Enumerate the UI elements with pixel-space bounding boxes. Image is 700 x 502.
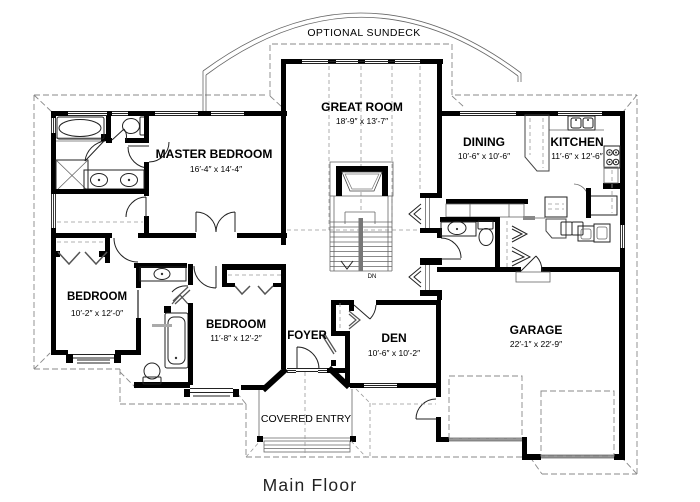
svg-text:FOYER: FOYER — [287, 330, 327, 342]
svg-text:BEDROOM: BEDROOM — [67, 291, 127, 303]
svg-text:22′-1″ x 22′-9″: 22′-1″ x 22′-9″ — [510, 339, 562, 349]
svg-text:COVERED ENTRY: COVERED ENTRY — [261, 413, 351, 425]
svg-text:10′-6″ x 10′-6″: 10′-6″ x 10′-6″ — [458, 151, 510, 161]
svg-text:MASTER BEDROOM: MASTER BEDROOM — [156, 147, 273, 161]
svg-text:DN: DN — [368, 274, 377, 280]
svg-text:GARAGE: GARAGE — [510, 323, 563, 337]
svg-text:DEN: DEN — [381, 331, 406, 345]
svg-text:BEDROOM: BEDROOM — [206, 319, 266, 331]
svg-text:Main Floor: Main Floor — [263, 475, 358, 495]
svg-text:DINING: DINING — [463, 135, 505, 149]
svg-text:KITCHEN: KITCHEN — [550, 135, 603, 149]
svg-text:GREAT ROOM: GREAT ROOM — [321, 100, 403, 114]
svg-text:18′-9″ x 13′-7″: 18′-9″ x 13′-7″ — [336, 116, 388, 126]
svg-text:11′-6″ x 12′-6″: 11′-6″ x 12′-6″ — [551, 151, 603, 161]
svg-text:10′-6″ x 10′-2″: 10′-6″ x 10′-2″ — [368, 348, 420, 358]
svg-text:11′-8″ x 12′-2″: 11′-8″ x 12′-2″ — [210, 333, 262, 343]
svg-text:10′-2″ x 12′-0″: 10′-2″ x 12′-0″ — [71, 308, 123, 318]
svg-text:16′-4″ x 14′-4″: 16′-4″ x 14′-4″ — [190, 164, 242, 174]
svg-text:OPTIONAL SUNDECK: OPTIONAL SUNDECK — [307, 27, 420, 39]
